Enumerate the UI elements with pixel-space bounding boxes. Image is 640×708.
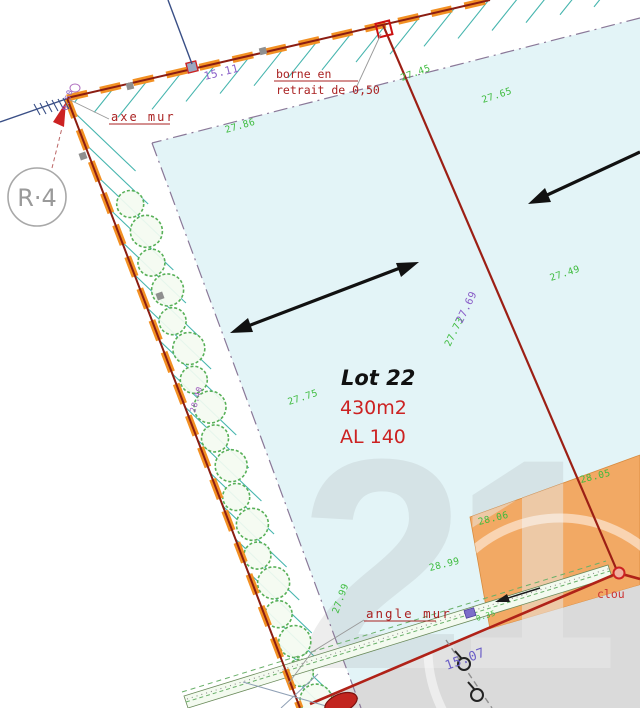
svg-text:angle mur: angle mur bbox=[366, 606, 452, 621]
clou-label: clou bbox=[597, 587, 625, 601]
clou-marker bbox=[614, 568, 625, 579]
cadastral-plan: 21 21 R·4 bbox=[0, 0, 640, 708]
r4-leader bbox=[52, 128, 62, 168]
svg-text:axe mur: axe mur bbox=[111, 110, 176, 124]
north-blue-line bbox=[168, 0, 192, 64]
lot-ref: AL 140 bbox=[340, 426, 406, 448]
r4-label: R·4 bbox=[17, 184, 57, 212]
svg-text:retrait de 0,50: retrait de 0,50 bbox=[276, 83, 380, 97]
lot-title: Lot 22 bbox=[341, 366, 415, 390]
site-plan-canvas: 21 21 R·4 bbox=[0, 0, 640, 708]
svg-text:borne en: borne en bbox=[276, 67, 331, 81]
borne-dot-3 bbox=[79, 152, 88, 161]
lot-area: 430m2 bbox=[340, 397, 407, 419]
